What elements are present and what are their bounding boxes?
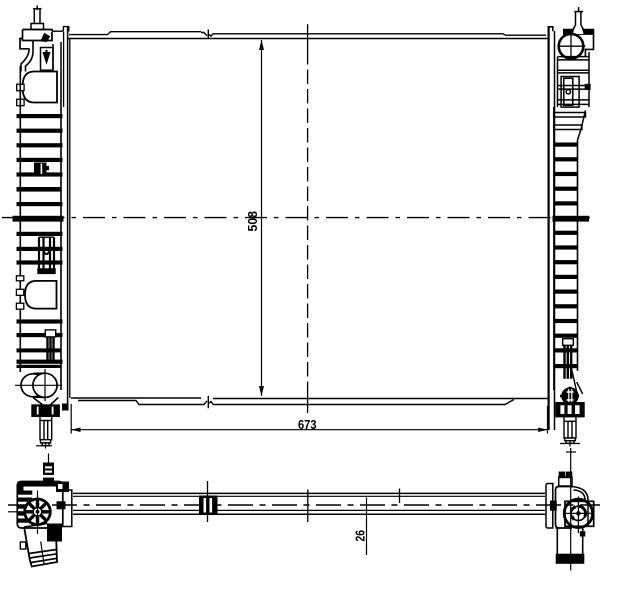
svg-text:673: 673 (298, 417, 317, 432)
svg-text:26: 26 (354, 530, 368, 542)
svg-text:508: 508 (245, 211, 260, 232)
